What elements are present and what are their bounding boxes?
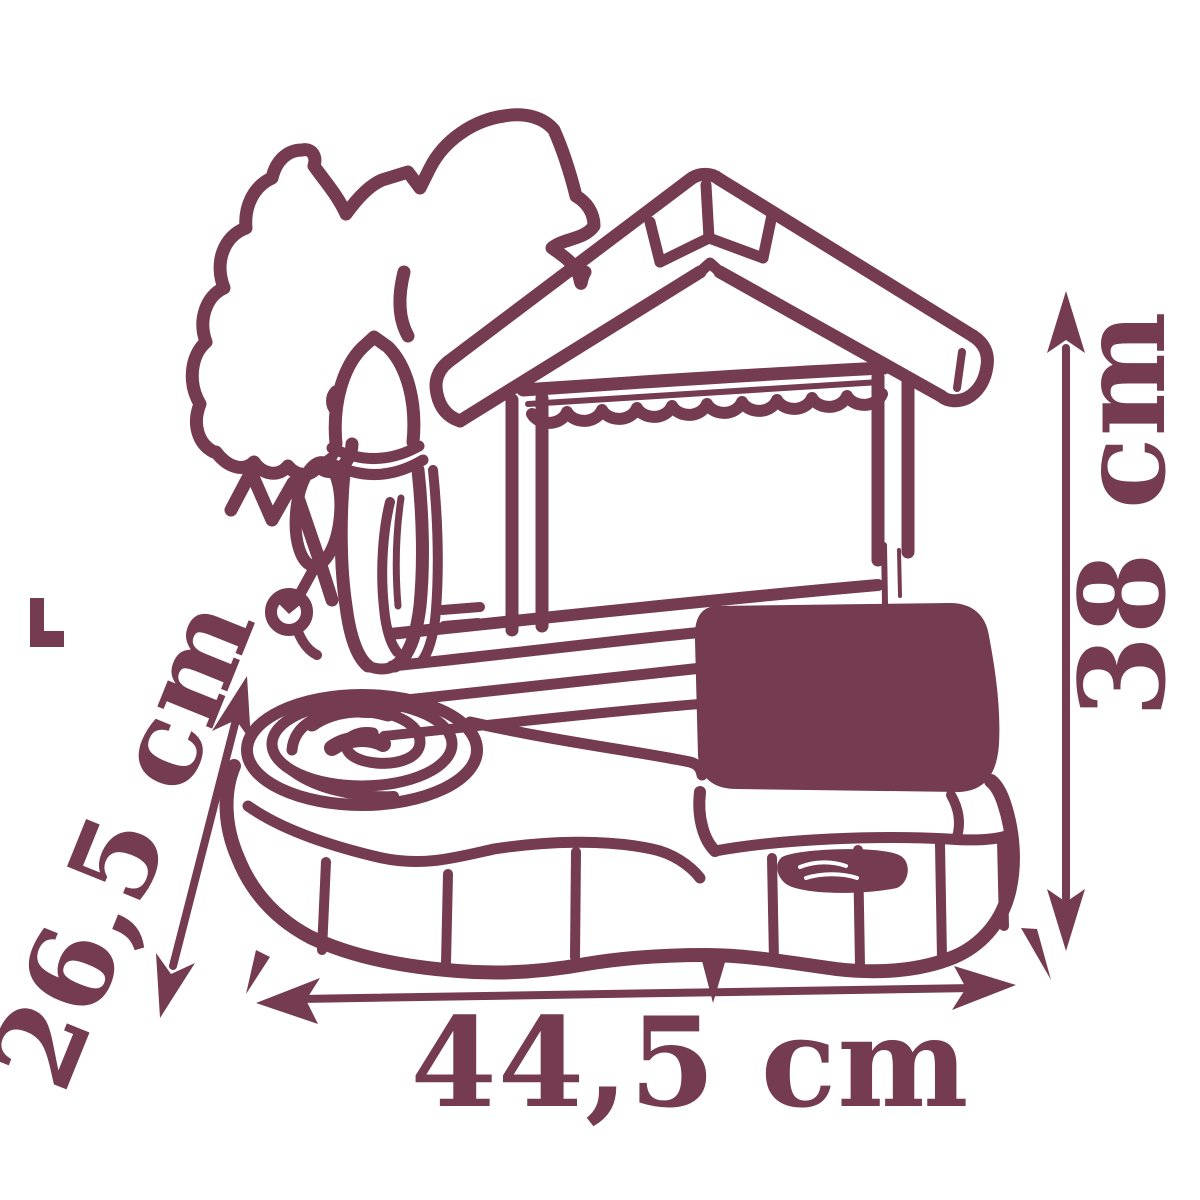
palm-trunk: [231, 472, 332, 600]
brand-blob: [777, 849, 908, 893]
roof-fascia: [523, 368, 884, 404]
canopy-roof: [436, 174, 987, 630]
pocket: [699, 792, 1009, 851]
tower-dome: [329, 337, 423, 475]
diagram-canvas: 38 cm 26,5 cm 44,5 cm: [0, 0, 1200, 1200]
right-post: [878, 377, 908, 604]
tower-body: [330, 470, 480, 713]
width-label: 44,5 cm: [411, 991, 970, 1136]
seat-panel: [695, 603, 999, 792]
width-dimension: 44,5 cm: [256, 966, 1016, 1136]
height-dimension: 38 cm: [1047, 291, 1192, 951]
swirl-basin: [247, 695, 477, 805]
left-post: [512, 398, 542, 630]
pump-lever: [271, 563, 317, 655]
stray-mark: [30, 598, 64, 647]
dimension-diagram: 38 cm 26,5 cm 44,5 cm: [0, 0, 1200, 1200]
height-label: 38 cm: [1053, 311, 1192, 718]
